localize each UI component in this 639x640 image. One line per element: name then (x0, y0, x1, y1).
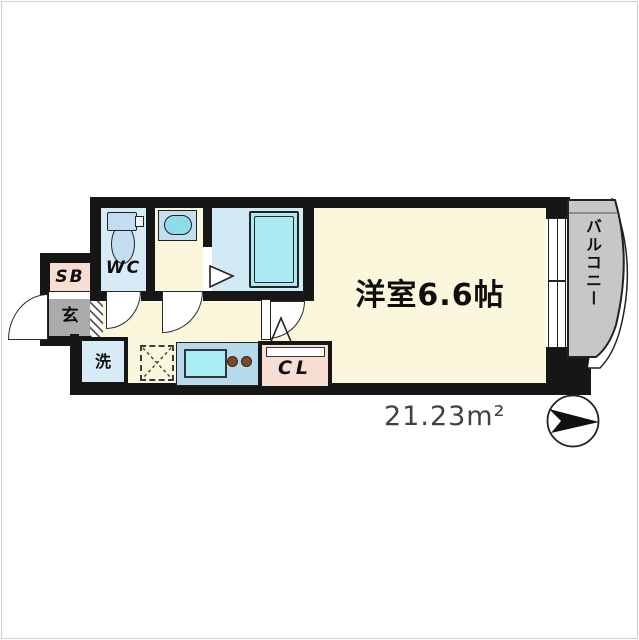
fridge-space-dashed-box (140, 345, 174, 381)
main-room-label: 洋室6.6帖 (314, 281, 546, 311)
toilet-tank (107, 212, 137, 231)
shoe-box-label: SB (48, 269, 92, 286)
closet-door-front (266, 347, 325, 357)
laundry-label: 洗 (82, 354, 124, 370)
stove-burner-icon (241, 356, 252, 367)
north-arrow-icon (538, 392, 610, 454)
wall-hall-top-b (141, 291, 163, 301)
stove-burner-icon (227, 356, 238, 367)
wall-bath-mainroom-divider (303, 197, 314, 301)
floor-plan: バルコニー 洋室6.6帖 WC SB 玄 洗 CL 21.23m² (0, 0, 639, 640)
closet-label: CL (258, 359, 332, 378)
bathtub-icon (249, 211, 299, 288)
entrance-label: 玄 (48, 308, 92, 325)
wall-top (90, 197, 570, 208)
doorway-passage-floor (303, 301, 314, 341)
wall-washroom-bath-divider (203, 197, 212, 247)
wall-hall-top-a (90, 291, 107, 301)
wall-bath-bottom (203, 291, 313, 301)
wall-shoebox-top (40, 253, 101, 262)
wall-wc-divider (146, 197, 155, 301)
entrance-door-arc (8, 294, 48, 340)
balcony-label: バルコニー (580, 218, 604, 363)
wc-label: WC (101, 260, 146, 277)
bathroom-folding-door (208, 264, 235, 289)
wash-basin-bowl (164, 215, 192, 235)
kitchen-sink-icon (184, 349, 227, 378)
toilet-handle (135, 216, 144, 227)
total-area-text: 21.23m² (384, 401, 505, 432)
